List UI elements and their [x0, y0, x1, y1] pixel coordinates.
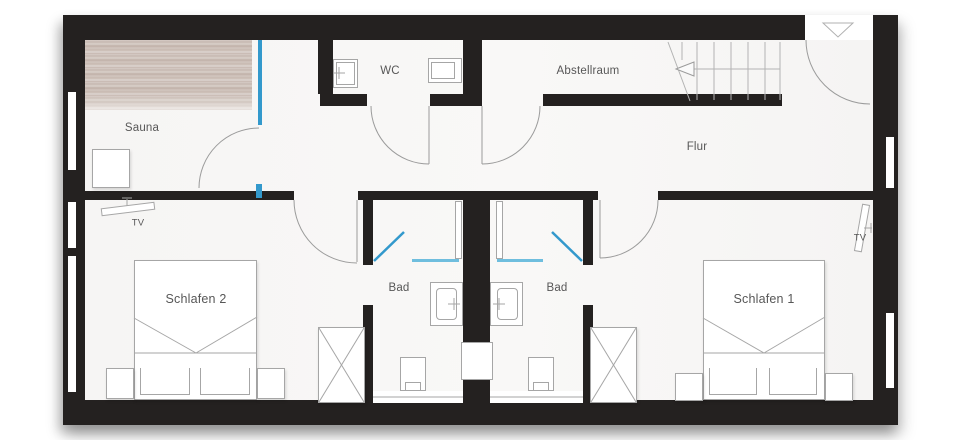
- label-bedroom2: Schlafen 2: [165, 292, 226, 306]
- sauna-glass-hinge: [256, 184, 262, 198]
- wc-sink: [333, 59, 358, 88]
- label-tv-bedroom2: TV: [132, 218, 145, 229]
- nightstand-bedroom2-right: [257, 368, 285, 399]
- bath-right-toilet-base: [533, 382, 549, 391]
- wc-toilet-bowl: [431, 62, 455, 79]
- window-bath-right: [490, 391, 583, 403]
- bath-duct-shaft: [461, 342, 493, 380]
- label-hallway: Flur: [687, 141, 708, 153]
- floor-plan-canvas: Sauna WC Abstellraum Flur Schlafen 2 Bad…: [0, 0, 960, 440]
- wall-bath-left-upper: [363, 200, 373, 265]
- bath-left-toilet-base: [405, 382, 421, 391]
- label-bath-right: Bad: [546, 282, 567, 294]
- window-bedroom1: [886, 313, 894, 388]
- wc-toilet: [428, 58, 462, 83]
- bath-left-sink-basin: [436, 288, 457, 320]
- shower-screen-left: [412, 259, 459, 262]
- wardrobe-bedroom2: [318, 327, 365, 403]
- bath-right-toilet: [528, 357, 554, 391]
- label-bath-left: Bad: [388, 282, 409, 294]
- wall-corridor-upper-b: [430, 94, 482, 106]
- shower-door-panel-right: [496, 201, 503, 259]
- label-wc: WC: [380, 65, 400, 77]
- label-tv-bedroom1: TV: [854, 233, 867, 244]
- pillow-bedroom1-left: [709, 368, 757, 395]
- window-sauna: [68, 92, 76, 170]
- wall-wc-storage-divider: [463, 40, 482, 94]
- bath-right-sink-basin: [497, 288, 518, 320]
- sauna-benches-wood: [85, 40, 252, 110]
- wall-top: [63, 15, 805, 40]
- sauna-heater: [92, 149, 130, 188]
- bath-left-sink: [430, 282, 463, 326]
- wall-bottom: [63, 400, 898, 425]
- window-hallway: [886, 137, 894, 188]
- window-bedroom2-a: [68, 202, 76, 248]
- bath-left-toilet: [400, 357, 426, 391]
- wall-corridor-upper-c: [543, 94, 782, 106]
- wall-corridor-lower-b: [358, 191, 598, 200]
- nightstand-bedroom2-left: [106, 368, 134, 399]
- sauna-glass-wall: [258, 40, 262, 125]
- window-bedroom2-b: [68, 256, 76, 392]
- shower-door-panel-left: [455, 201, 462, 259]
- shower-screen-right: [497, 259, 543, 262]
- wc-sink-basin: [336, 62, 355, 85]
- window-bath-left: [373, 391, 463, 403]
- bath-right-sink: [490, 282, 523, 326]
- label-sauna: Sauna: [125, 122, 159, 134]
- label-bedroom1: Schlafen 1: [733, 292, 794, 306]
- wall-bath-right-upper: [583, 200, 593, 265]
- pillow-bedroom2-right: [200, 368, 250, 395]
- wall-wc-left: [318, 40, 333, 94]
- pillow-bedroom2-left: [140, 368, 190, 395]
- label-storage: Abstellraum: [557, 65, 620, 77]
- wall-corridor-lower-c: [658, 191, 873, 200]
- pillow-bedroom1-right: [769, 368, 817, 395]
- nightstand-bedroom1-left: [675, 373, 703, 401]
- wardrobe-bedroom1: [590, 327, 637, 403]
- nightstand-bedroom1-right: [825, 373, 853, 401]
- wall-corridor-upper-a: [320, 94, 367, 106]
